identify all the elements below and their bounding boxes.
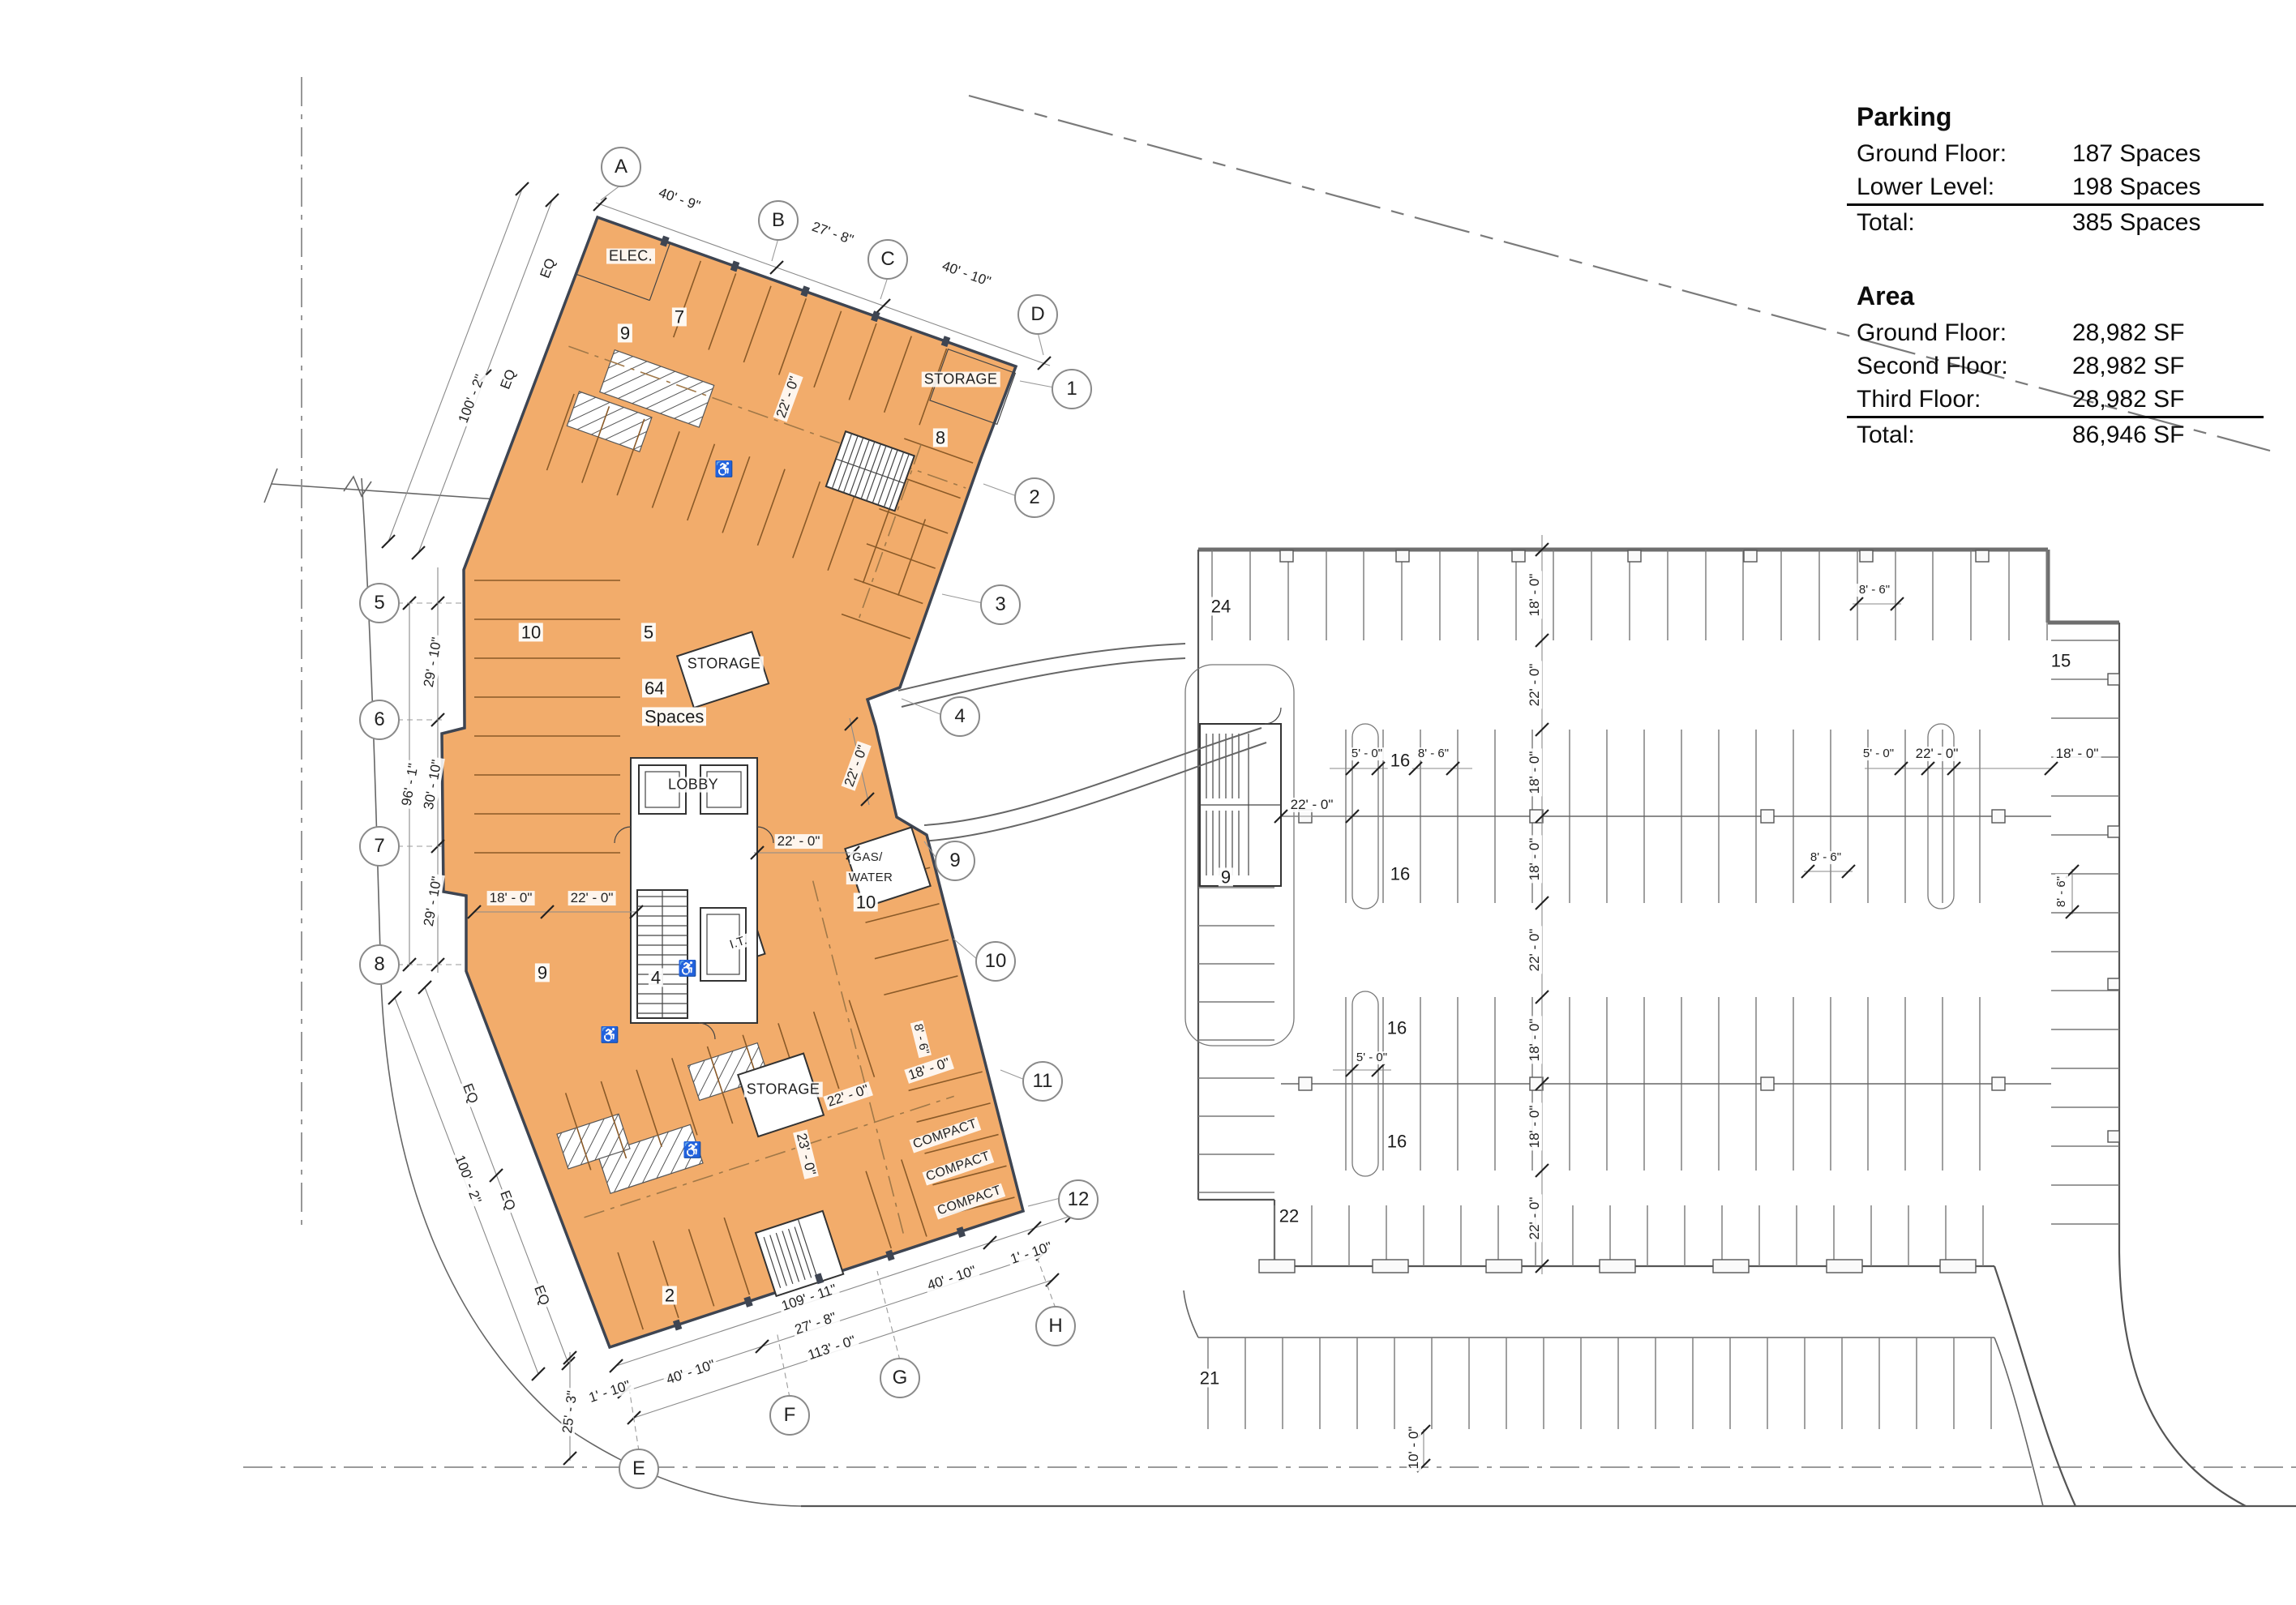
floor-plan-sheet: 40' - 9"27' - 8"40' - 10"EQEQ100' - 2"22… [0,0,2296,1605]
area-title: Area [1847,281,2264,316]
total-value: 86,946 SF [2072,418,2184,452]
row-value: 28,982 SF [2072,316,2184,349]
parking-row: Lower Level: 198 Spaces [1847,170,2264,203]
row-label: Third Floor: [1857,383,2072,416]
row-label: Second Floor: [1857,349,2072,383]
row-label: Lower Level: [1857,170,2072,203]
total-label: Total: [1857,418,2072,452]
area-row: Ground Floor: 28,982 SF [1847,316,2264,349]
area-row: Third Floor: 28,982 SF [1847,383,2264,416]
stats-panel: Parking Ground Floor: 187 Spaces Lower L… [1847,102,2264,452]
row-value: 198 Spaces [2072,170,2200,203]
parking-title: Parking [1847,102,2264,137]
row-value: 187 Spaces [2072,137,2200,170]
row-value: 28,982 SF [2072,349,2184,383]
parking-lot [1184,535,2246,1506]
total-value: 385 Spaces [2072,206,2200,239]
parking-total-row: Total: 385 Spaces [1847,203,2264,239]
total-label: Total: [1857,206,2072,239]
building [442,212,1023,1347]
area-row: Second Floor: 28,982 SF [1847,349,2264,383]
parking-row: Ground Floor: 187 Spaces [1847,137,2264,170]
area-total-row: Total: 86,946 SF [1847,416,2264,452]
row-label: Ground Floor: [1857,137,2072,170]
row-value: 28,982 SF [2072,383,2184,416]
row-label: Ground Floor: [1857,316,2072,349]
